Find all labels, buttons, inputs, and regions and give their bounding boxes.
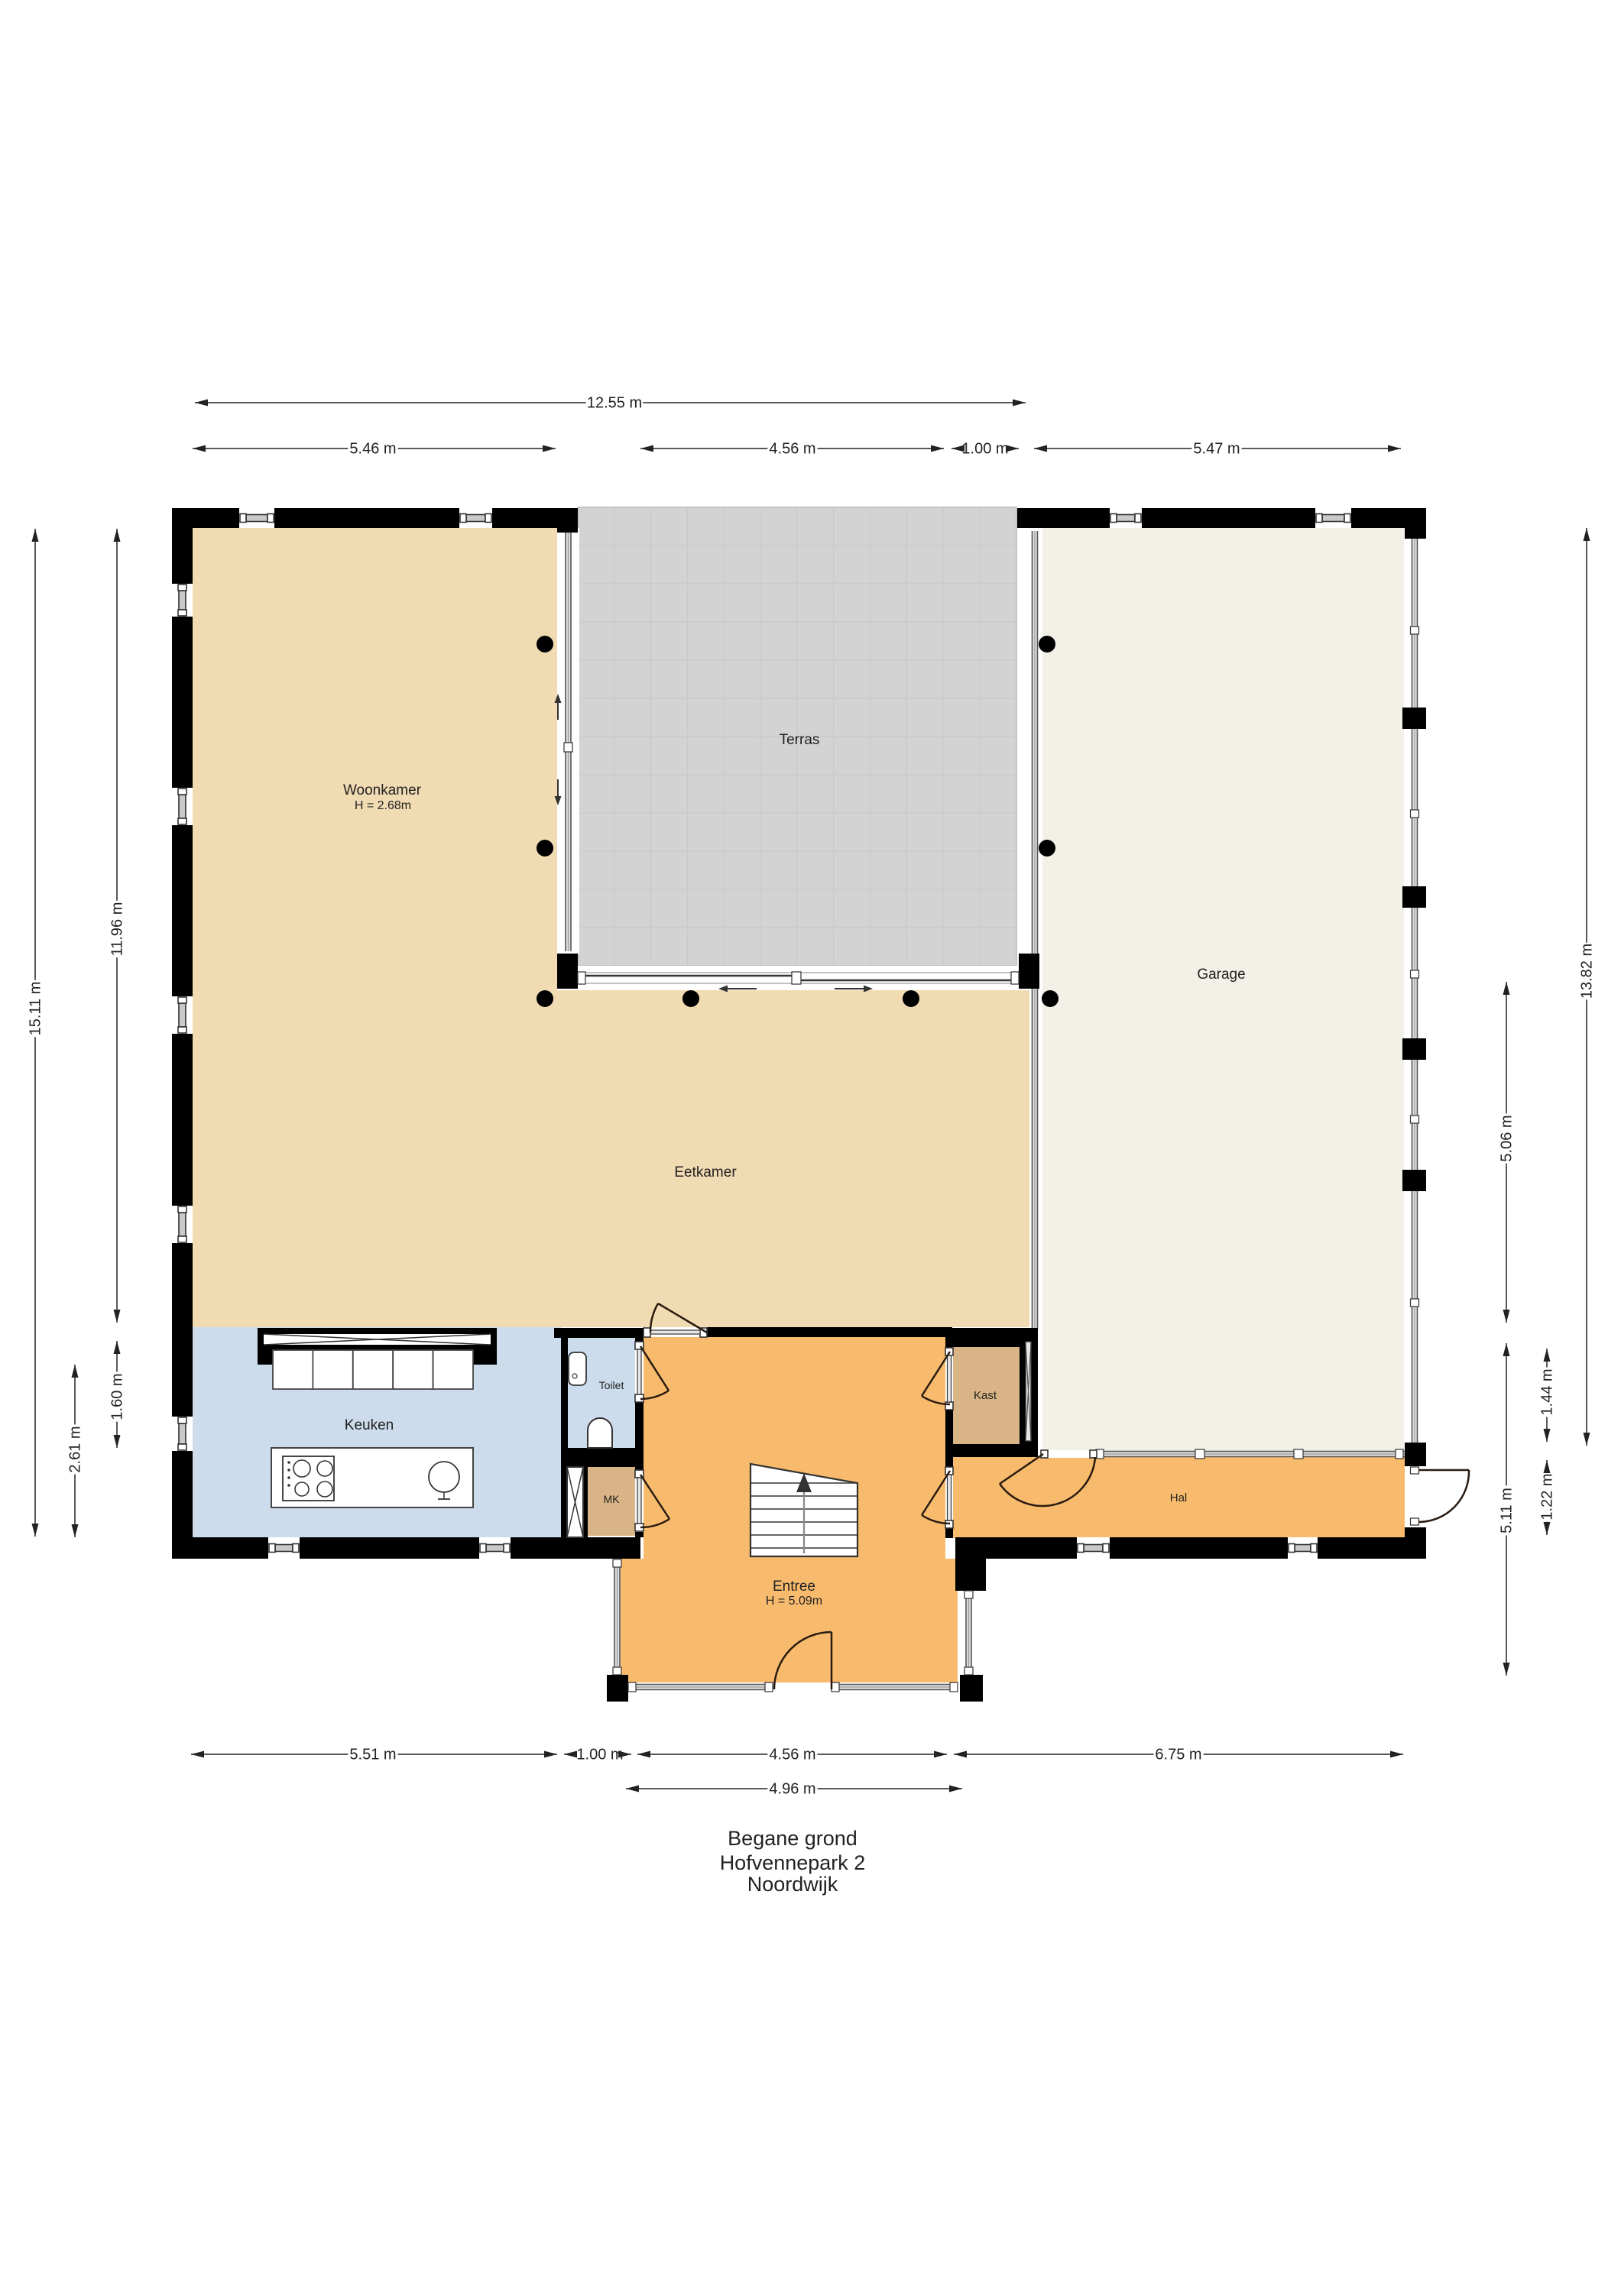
- svg-text:MK: MK: [604, 1493, 621, 1505]
- svg-text:1.22 m: 1.22 m: [1539, 1473, 1556, 1520]
- svg-text:6.75 m: 6.75 m: [1155, 1747, 1201, 1763]
- svg-text:Hofvennepark 2: Hofvennepark 2: [720, 1851, 866, 1874]
- svg-text:Kast: Kast: [974, 1389, 997, 1402]
- svg-text:Toilet: Toilet: [599, 1379, 624, 1391]
- svg-text:5.06 m: 5.06 m: [1499, 1115, 1516, 1161]
- svg-text:Entree: Entree: [773, 1579, 815, 1595]
- svg-text:1.00 m: 1.00 m: [961, 441, 1008, 458]
- svg-text:12.55 m: 12.55 m: [587, 395, 642, 412]
- svg-text:1.00 m: 1.00 m: [576, 1747, 623, 1763]
- svg-text:2.61 m: 2.61 m: [67, 1426, 84, 1472]
- svg-text:4.56 m: 4.56 m: [769, 441, 815, 458]
- svg-text:5.11 m: 5.11 m: [1499, 1488, 1516, 1533]
- svg-text:Eetkamer: Eetkamer: [674, 1164, 737, 1180]
- svg-text:H = 2.68m: H = 2.68m: [355, 799, 411, 812]
- svg-text:1.44 m: 1.44 m: [1539, 1368, 1556, 1415]
- svg-text:1.60 m: 1.60 m: [109, 1373, 126, 1420]
- svg-text:4.96 m: 4.96 m: [769, 1781, 815, 1798]
- svg-text:5.46 m: 5.46 m: [349, 441, 396, 458]
- svg-text:Begane grond: Begane grond: [728, 1827, 858, 1850]
- svg-text:Garage: Garage: [1197, 967, 1245, 983]
- svg-text:H = 5.09m: H = 5.09m: [766, 1595, 822, 1608]
- svg-text:11.96 m: 11.96 m: [109, 902, 126, 957]
- svg-text:4.56 m: 4.56 m: [769, 1747, 815, 1763]
- svg-text:15.11 m: 15.11 m: [28, 982, 44, 1036]
- svg-text:Terras: Terras: [780, 732, 820, 748]
- svg-text:5.47 m: 5.47 m: [1193, 441, 1240, 458]
- svg-text:Keuken: Keuken: [345, 1417, 394, 1433]
- svg-text:13.82 m: 13.82 m: [1579, 944, 1596, 999]
- svg-text:Noordwijk: Noordwijk: [747, 1873, 838, 1896]
- svg-text:5.51 m: 5.51 m: [349, 1747, 396, 1763]
- svg-text:Woonkamer: Woonkamer: [343, 782, 422, 798]
- svg-text:Hal: Hal: [1170, 1491, 1188, 1504]
